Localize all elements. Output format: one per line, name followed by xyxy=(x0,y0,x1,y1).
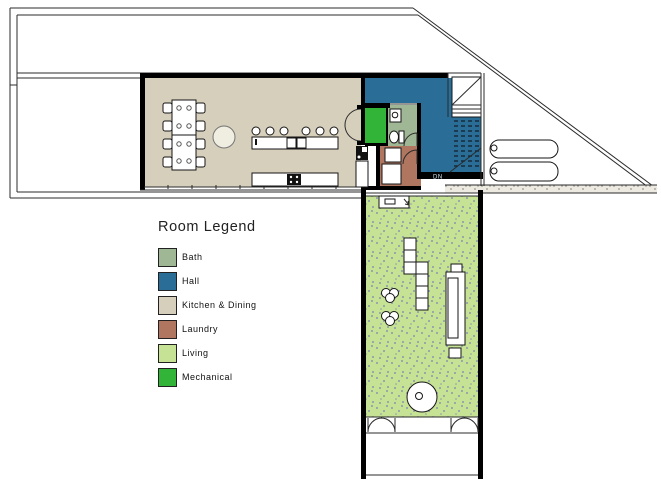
sink-basin xyxy=(287,138,296,148)
side-table xyxy=(449,348,461,358)
gravel-strip xyxy=(445,185,657,193)
legend-item: Laundry xyxy=(158,320,257,338)
legend-title: Room Legend xyxy=(158,219,257,235)
floor-plan-page: DN xyxy=(0,0,661,486)
washer-icon xyxy=(385,148,401,162)
legend-item: Living xyxy=(158,344,257,362)
core-bottom-wall xyxy=(421,172,483,179)
legend-swatch xyxy=(158,344,177,363)
legend-swatch xyxy=(158,320,177,339)
legend-item-label: Laundry xyxy=(177,324,218,334)
faucet-icon xyxy=(255,139,257,145)
plant-circle xyxy=(213,126,235,148)
kitchen-appliance xyxy=(356,146,368,187)
legend-item: Bath xyxy=(158,248,257,266)
round-table xyxy=(407,382,437,412)
legend-item-label: Hall xyxy=(177,276,200,286)
legend-item-label: Living xyxy=(177,348,209,358)
legend-item: Mechanical xyxy=(158,368,257,386)
kitchen-island xyxy=(252,173,338,186)
tank xyxy=(490,162,558,181)
mechanical-room xyxy=(365,108,388,143)
toilet-icon xyxy=(390,131,405,143)
legend-item: Hall xyxy=(158,272,257,290)
floor-plan-drawing: DN xyxy=(0,0,661,486)
legend-swatch xyxy=(158,272,177,291)
sofa xyxy=(446,264,465,358)
stair-dn-label: DN xyxy=(433,175,443,181)
propane-tanks xyxy=(490,140,558,181)
tank xyxy=(490,140,558,158)
legend-swatch xyxy=(158,296,177,315)
legend-item-label: Mechanical xyxy=(177,372,233,382)
patio-doors xyxy=(368,418,478,432)
legend-swatch xyxy=(158,248,177,267)
legend-item-label: Bath xyxy=(177,252,203,262)
room-legend: Room Legend BathHallKitchen & DiningLaun… xyxy=(158,219,257,392)
bath-sink xyxy=(390,109,401,122)
legend-swatch xyxy=(158,368,177,387)
room-legend-items: BathHallKitchen & DiningLaundryLivingMec… xyxy=(158,248,257,386)
entry-mat xyxy=(379,196,409,208)
dryer-icon xyxy=(382,164,401,184)
sink-basin xyxy=(297,138,306,148)
legend-item-label: Kitchen & Dining xyxy=(177,300,257,310)
cooktop-icon xyxy=(287,174,301,185)
legend-item: Kitchen & Dining xyxy=(158,296,257,314)
